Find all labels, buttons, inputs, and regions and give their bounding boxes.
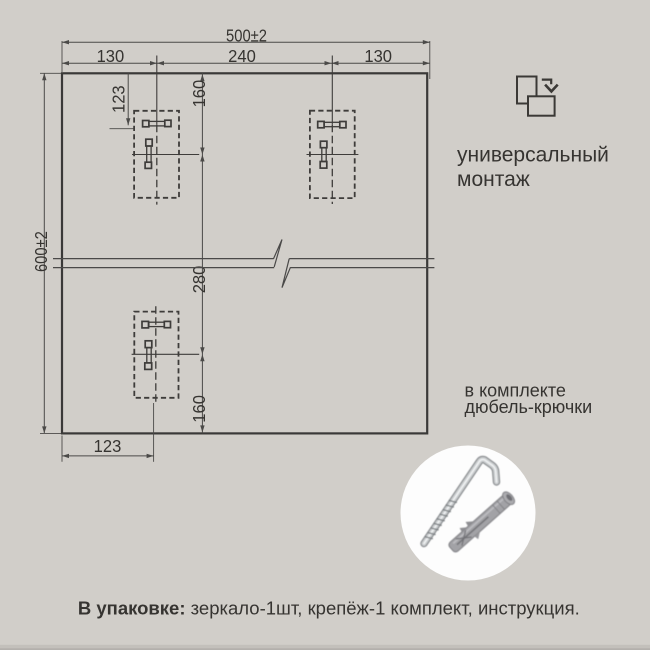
svg-text:дюбель-крючки: дюбель-крючки	[465, 397, 593, 417]
svg-text:280: 280	[188, 266, 209, 294]
svg-text:130: 130	[97, 45, 125, 66]
svg-text:универсальный: универсальный	[457, 144, 609, 167]
svg-text:В упаковке: зеркало-1шт, крепё: В упаковке: зеркало-1шт, крепёж-1 компле…	[78, 598, 580, 619]
svg-text:600±2: 600±2	[31, 231, 51, 272]
svg-text:160: 160	[188, 80, 209, 108]
svg-text:123: 123	[94, 435, 122, 456]
svg-text:монтаж: монтаж	[457, 168, 530, 191]
svg-text:123: 123	[108, 85, 129, 113]
svg-text:160: 160	[188, 395, 209, 423]
svg-text:130: 130	[364, 45, 392, 66]
svg-text:500±2: 500±2	[226, 26, 267, 46]
svg-text:240: 240	[228, 45, 256, 66]
